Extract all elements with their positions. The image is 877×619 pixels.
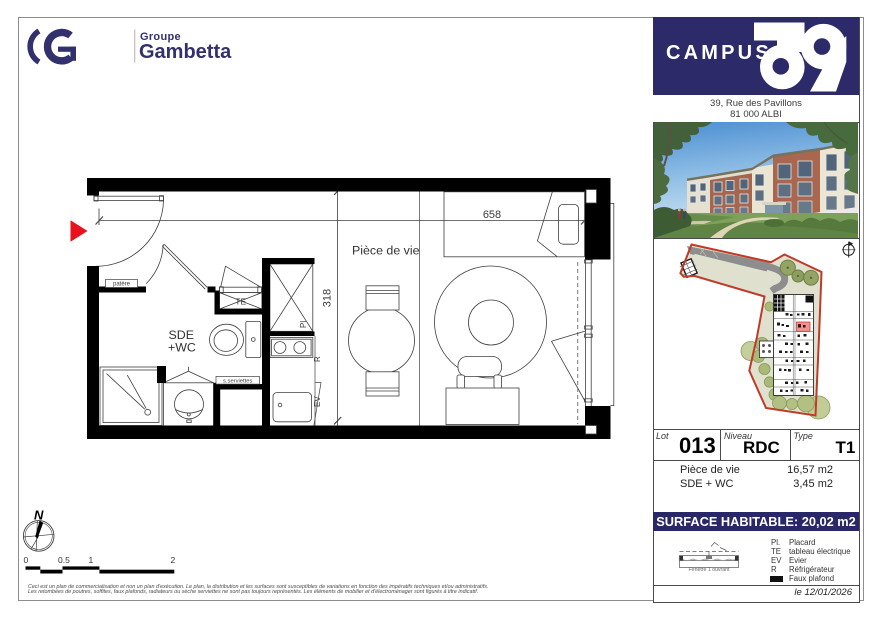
svg-text:658: 658	[483, 209, 501, 221]
svg-text:2: 2	[171, 555, 176, 565]
svg-text:Pl: Pl	[299, 321, 308, 328]
svg-text:Pièce de vie: Pièce de vie	[352, 244, 420, 258]
svg-text:R: R	[313, 356, 322, 362]
svg-text:s.serviettes: s.serviettes	[223, 378, 252, 384]
svg-text:0: 0	[24, 555, 29, 565]
svg-text:318: 318	[322, 289, 334, 307]
svg-text:+WC: +WC	[168, 341, 196, 355]
svg-text:EV: EV	[313, 396, 322, 407]
svg-text:0.5: 0.5	[58, 555, 70, 565]
svg-text:1: 1	[89, 555, 94, 565]
svg-text:N: N	[34, 508, 44, 523]
svg-text:patère: patère	[113, 282, 131, 288]
svg-text:TE: TE	[235, 297, 246, 307]
